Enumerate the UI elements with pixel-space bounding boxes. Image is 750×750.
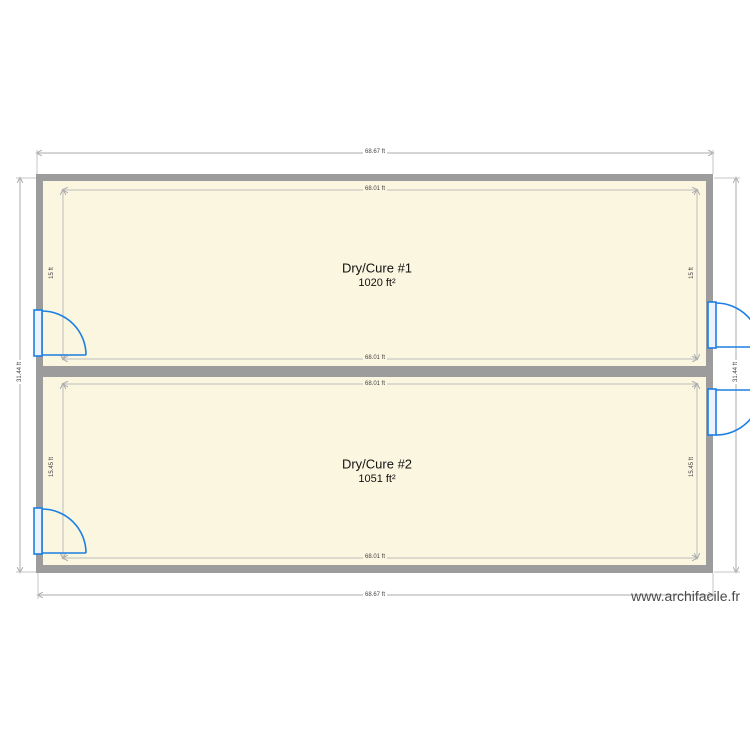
dim-label-room1-height-left: 15 ft bbox=[49, 265, 55, 281]
dim-label-room2-width-top: 68.01 ft bbox=[363, 381, 387, 387]
dim-label-room1-width-top: 68.01 ft bbox=[363, 186, 387, 192]
dim-label-room1-width-bottom: 68.01 ft bbox=[363, 355, 387, 361]
dim-label-outer-height-left: 31.44 ft bbox=[17, 360, 23, 384]
door-room1-right-icon[interactable] bbox=[708, 302, 750, 348]
partition-wall bbox=[36, 366, 713, 377]
dim-label-outer-width-bottom: 68.67 ft bbox=[363, 592, 387, 598]
dim-label-outer-height-right: 31.44 ft bbox=[733, 360, 739, 384]
dim-label-room2-height-right: 15.45 ft bbox=[689, 455, 695, 479]
door-room2-right-icon[interactable] bbox=[708, 389, 750, 435]
dim-label-room1-height-right: 15 ft bbox=[689, 265, 695, 281]
room1-name-label: Dry/Cure #1 bbox=[342, 261, 412, 276]
dim-label-outer-width-top: 68.67 ft bbox=[363, 149, 387, 155]
room2-name-label: Dry/Cure #2 bbox=[342, 457, 412, 472]
dim-label-room2-width-bottom: 68.01 ft bbox=[363, 554, 387, 560]
archifacile-watermark: www.archifacile.fr bbox=[631, 588, 740, 604]
dim-label-room2-height-left: 15.45 ft bbox=[49, 455, 55, 479]
floorplan-canvas: 68.67 ft 68.67 ft 31.44 ft 31.44 ft 68.0… bbox=[0, 0, 750, 750]
room2-area-label: 1051 ft² bbox=[358, 473, 395, 485]
room1-area-label: 1020 ft² bbox=[358, 277, 395, 289]
